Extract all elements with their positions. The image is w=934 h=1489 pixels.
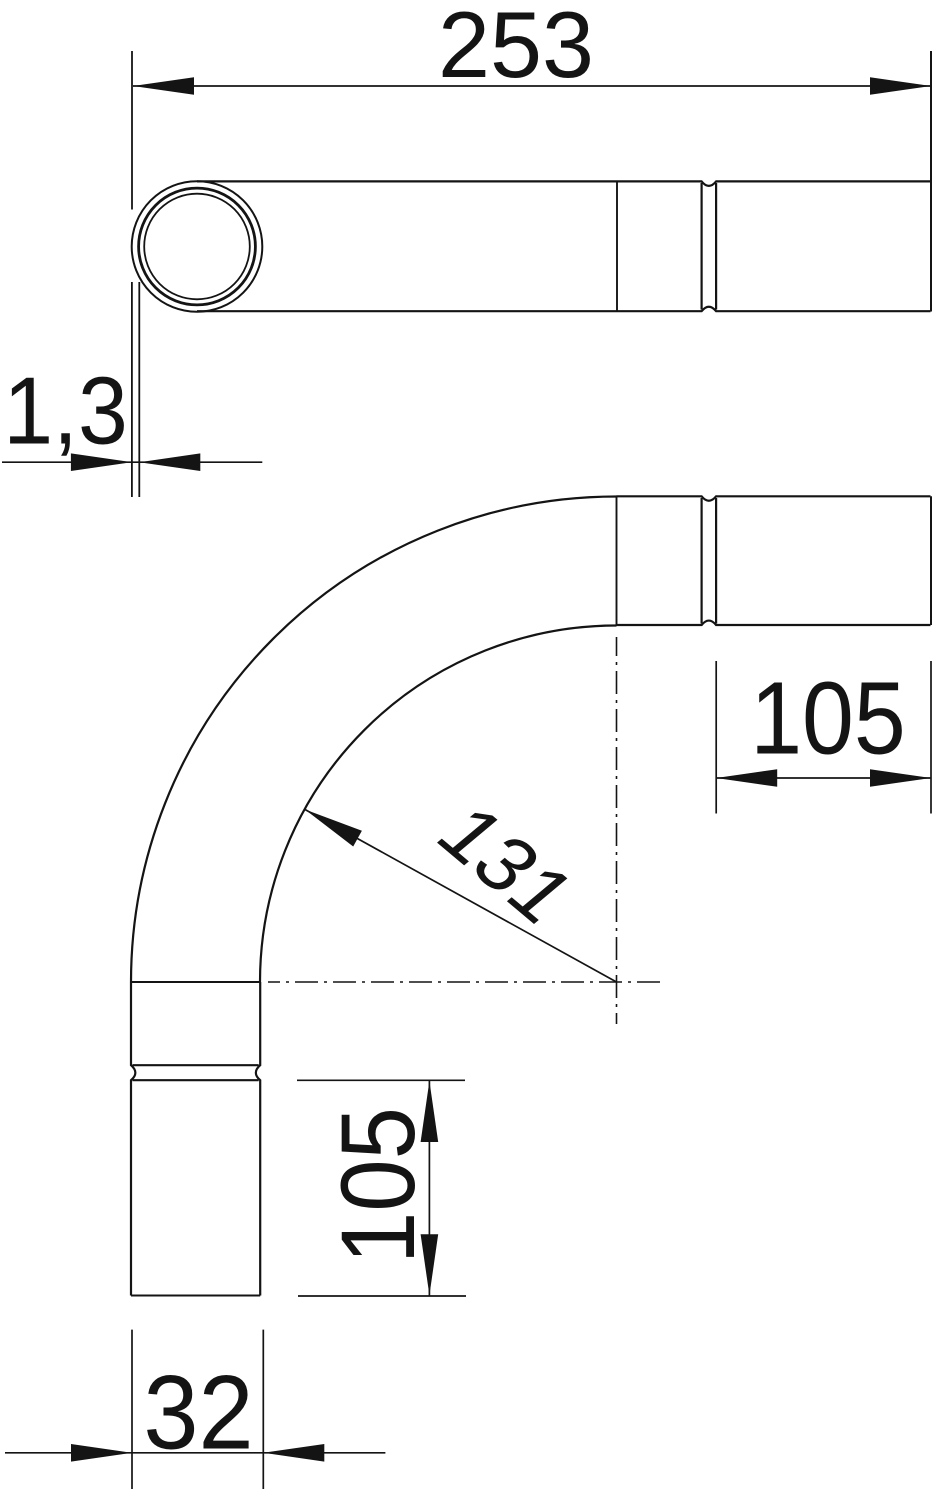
svg-text:253: 253 [438,0,594,97]
svg-text:105: 105 [320,1107,437,1264]
svg-text:131: 131 [418,790,595,938]
svg-text:32: 32 [143,1355,253,1472]
svg-text:105: 105 [750,661,906,776]
svg-text:1,3: 1,3 [3,357,128,464]
